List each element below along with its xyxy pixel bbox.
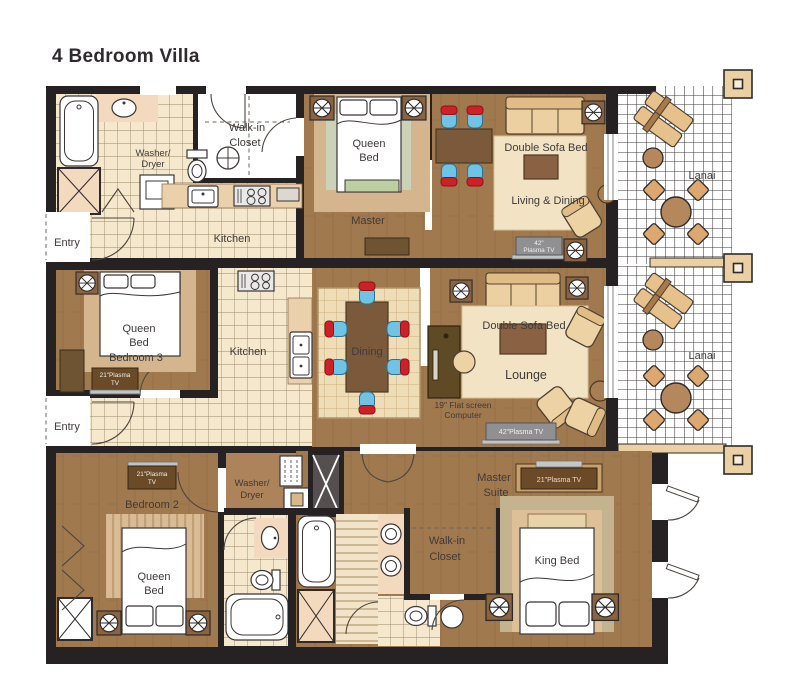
floor-plan-page: 4 Bedroom Villa Lanai Lanai bbox=[0, 0, 802, 699]
bedside-lamp-icon bbox=[76, 272, 98, 294]
tv-label-1: 21"Plasma bbox=[100, 372, 131, 379]
suite-label-1: Master bbox=[477, 472, 511, 484]
bed-label-2: Bed bbox=[359, 152, 379, 164]
stool bbox=[441, 606, 463, 628]
tv-label-1: 42" bbox=[534, 240, 543, 247]
sink-icon bbox=[381, 556, 401, 576]
kitchen-label: Kitchen bbox=[230, 346, 267, 358]
room-label: Bedroom 3 bbox=[109, 352, 163, 364]
stove-icon bbox=[234, 186, 270, 206]
tv-42-plasma: 42"Plasma TV bbox=[482, 423, 560, 444]
sofa bbox=[486, 273, 560, 311]
double-sink-icon bbox=[290, 332, 312, 378]
ceiling-fan-icon bbox=[566, 277, 588, 299]
coffee-table bbox=[524, 155, 558, 179]
bed-label: King Bed bbox=[535, 555, 580, 567]
king-bed bbox=[520, 514, 594, 634]
washer-dryer-label-2: Dryer bbox=[240, 490, 263, 501]
tv-label-1: 21"Plasma bbox=[137, 471, 168, 478]
bedside-lamp-icon bbox=[186, 611, 210, 635]
lanai-top: Lanai bbox=[618, 86, 732, 264]
door-gap bbox=[140, 86, 176, 95]
washer-dryer-label-2: Dryer bbox=[141, 159, 164, 170]
tv-42-plasma: 42" Plasma TV bbox=[512, 237, 566, 259]
tv-label: 42"Plasma TV bbox=[499, 429, 544, 436]
lanai-label: Lanai bbox=[689, 350, 716, 362]
entry-label: Entry bbox=[54, 421, 80, 433]
tv-21-plasma: 21"Plasma TV bbox=[90, 368, 140, 394]
sink-icon bbox=[381, 524, 401, 544]
unit-middle: Queen Bed Bedroom 3 21"Plasma TV Kitch bbox=[44, 268, 618, 447]
toilet-icon bbox=[251, 570, 280, 590]
tv-21-plasma: 21"Plasma TV bbox=[128, 462, 178, 489]
lanai-label: Lanai bbox=[689, 170, 716, 182]
bed-bench bbox=[345, 180, 399, 192]
room-label: Bedroom 2 bbox=[125, 499, 179, 511]
toilet-icon bbox=[187, 150, 207, 182]
counter-tray bbox=[277, 188, 299, 201]
sofa bbox=[506, 97, 584, 134]
page-title: 4 Bedroom Villa bbox=[52, 46, 200, 67]
lanai-post bbox=[724, 70, 752, 98]
stove-icon bbox=[238, 271, 274, 291]
sofa-label: Double Sofa Bed bbox=[482, 320, 565, 332]
toilet-icon bbox=[405, 606, 436, 626]
tv-label: 21"Plasma TV bbox=[537, 477, 582, 484]
shower-icon bbox=[58, 168, 100, 214]
unit-bottom: 21"Plasma TV Bedroom 2 Queen Bed bbox=[56, 444, 699, 647]
bedside-lamp-icon bbox=[592, 594, 618, 620]
tv-21-plasma: 21"Plasma TV bbox=[516, 461, 602, 492]
ceiling-fan-icon bbox=[564, 239, 587, 262]
computer-label-1: 19" Flat screen bbox=[435, 400, 492, 410]
unit-top: Walk-in Closet bbox=[44, 86, 618, 262]
bathtub-icon bbox=[226, 594, 288, 640]
hall-floor bbox=[90, 398, 312, 446]
computer-label-2: Computer bbox=[444, 410, 481, 420]
room-walkin-closet-top: Walk-in Closet bbox=[193, 86, 304, 183]
washer-dryer-label-1: Washer/ bbox=[135, 148, 170, 159]
ceiling-fan-icon bbox=[450, 280, 472, 302]
bedside-lamp-icon bbox=[310, 96, 334, 120]
lanai-post bbox=[724, 254, 752, 282]
shower-icon bbox=[298, 590, 334, 642]
tv-label-2: Plasma TV bbox=[523, 247, 555, 254]
kitchen-label: Kitchen bbox=[214, 233, 251, 245]
kitchen-sink-icon bbox=[188, 186, 218, 207]
tv-label-2: TV bbox=[148, 479, 157, 486]
dresser bbox=[60, 350, 84, 392]
tv-label-2: TV bbox=[111, 380, 120, 387]
bathtub-icon bbox=[60, 96, 98, 166]
room-dining: Dining bbox=[318, 282, 420, 418]
sofa-label: Double Sofa Bed bbox=[504, 142, 587, 154]
bed-label-2: Bed bbox=[144, 585, 164, 597]
dining-label: Dining bbox=[351, 346, 382, 358]
sliding-door bbox=[604, 134, 618, 200]
washer-dryer-label-1: Washer/ bbox=[234, 478, 269, 489]
desk-chair bbox=[453, 351, 475, 373]
bathtub-icon bbox=[298, 516, 335, 587]
dresser bbox=[365, 238, 409, 255]
lanai-post bbox=[724, 446, 752, 474]
ceiling-fan-icon bbox=[582, 101, 605, 124]
sliding-door bbox=[604, 286, 618, 398]
walkin-label-2: Closet bbox=[429, 551, 460, 563]
bedside-lamp-icon bbox=[97, 611, 121, 635]
walkin-label-1: Walk-in bbox=[429, 535, 465, 547]
bed-label-1: Queen bbox=[352, 138, 385, 150]
bed-label-2: Bed bbox=[129, 337, 149, 349]
room-label: Master bbox=[351, 215, 385, 227]
patio-side-table bbox=[643, 330, 663, 350]
bedside-lamp-icon bbox=[486, 594, 512, 620]
living-label: Living & Dining bbox=[511, 195, 584, 207]
floor-plan-canvas: 4 Bedroom Villa Lanai Lanai bbox=[0, 0, 802, 699]
walkin-label-1: Walk-in bbox=[229, 122, 265, 134]
lanai-middle: Lanai bbox=[618, 266, 732, 446]
dining-table bbox=[436, 129, 492, 163]
bed-label-1: Queen bbox=[137, 571, 170, 583]
lanai-beam bbox=[650, 258, 726, 267]
lounge-label: Lounge bbox=[505, 368, 547, 382]
bedside-lamp-icon bbox=[402, 96, 426, 120]
entry-label: Entry bbox=[54, 237, 80, 249]
patio-side-table bbox=[643, 148, 663, 168]
shower-icon bbox=[308, 451, 344, 517]
walkin-label-2: Closet bbox=[229, 137, 260, 149]
closet-shelf bbox=[58, 598, 92, 640]
bed-label-1: Queen bbox=[122, 323, 155, 335]
